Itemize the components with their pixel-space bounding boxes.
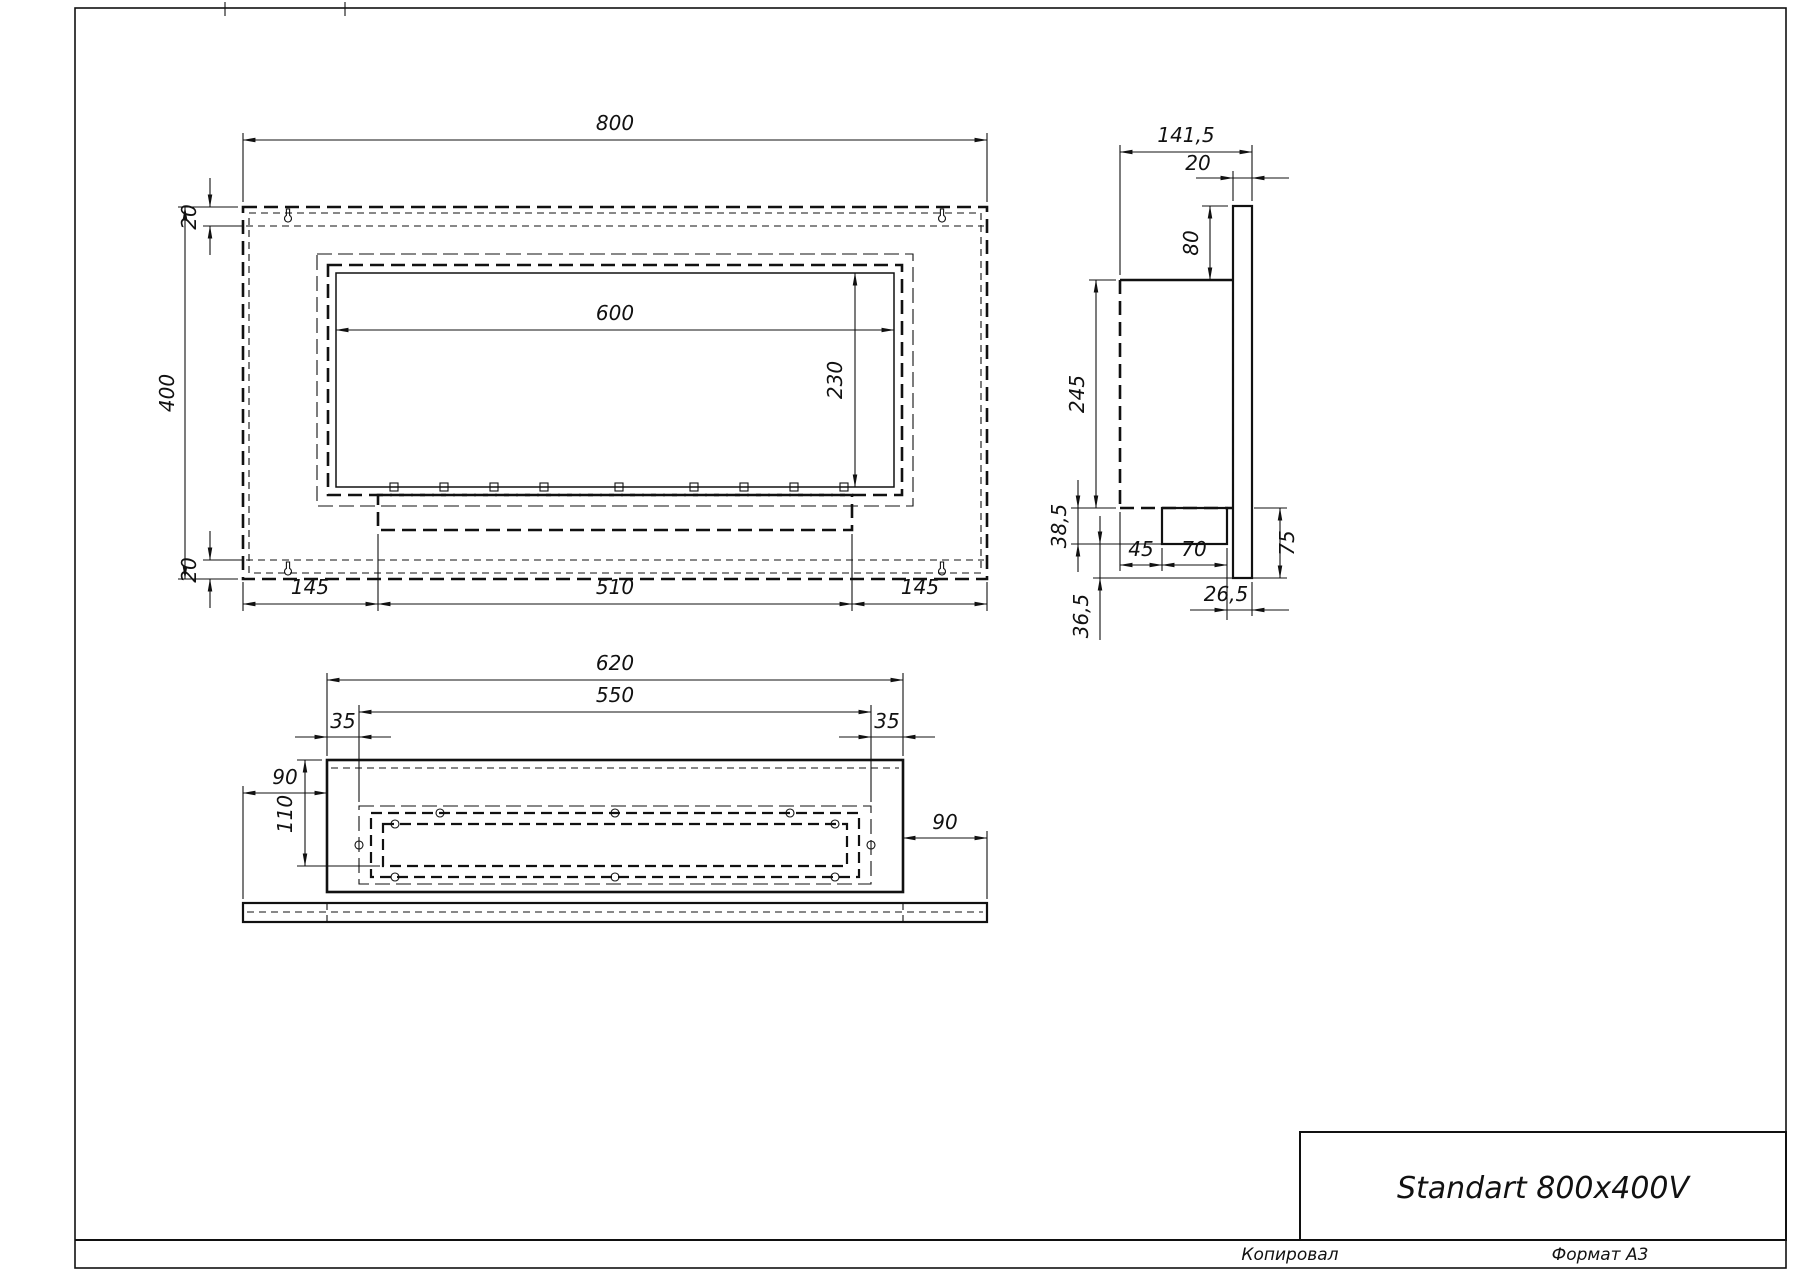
bottom-body-outline (327, 760, 903, 892)
footer-labels: Копировал Формат А3 (1241, 1245, 1648, 1265)
screw-hole-icon (355, 809, 875, 881)
dim-label: 400 (155, 374, 179, 412)
bottom-burner-inner (383, 824, 847, 866)
dim-label: 600 (596, 301, 634, 325)
dim-label: 800 (596, 111, 634, 135)
bottom-burner-outer (371, 813, 859, 877)
bottom-clearance-outline (359, 806, 871, 884)
copied-label: Копировал (1241, 1245, 1338, 1265)
dim-label: 245 (1065, 375, 1089, 413)
opening-frame-outline (328, 265, 902, 495)
bottom-view: 620 550 35 35 90 (243, 651, 987, 922)
dim-label: 230 (823, 361, 847, 399)
dim-back-gap: 26,5 (1190, 582, 1289, 616)
front-outer-outline (243, 207, 987, 579)
dim-label: 38,5 (1047, 504, 1071, 549)
dim-opening-width: 600 (336, 301, 894, 330)
dim-label: 90 (272, 765, 297, 789)
dim-label: 145 (291, 575, 329, 599)
dim-label: 20 (1185, 151, 1210, 175)
dim-label: 45 (1128, 537, 1153, 561)
page-frame (75, 2, 1786, 1268)
side-view: 141,5 20 80 245 (1047, 123, 1299, 640)
dim-front-height: 400 (155, 207, 238, 579)
back-panel (1233, 206, 1252, 578)
dim-label: 36,5 (1069, 594, 1093, 639)
burner-box-hidden-outline (378, 495, 852, 530)
dim-label: 90 (932, 810, 957, 834)
dim-front-bottom-offset: 20 (177, 531, 243, 608)
drawing-canvas: 800 400 20 20 600 (0, 0, 1800, 1273)
dim-flange-right: 90 (903, 810, 987, 899)
drawing-title: Standart 800x400V (1397, 1171, 1692, 1206)
dim-label: 510 (596, 575, 634, 599)
front-view: 800 400 20 20 600 (155, 111, 987, 611)
dim-front-top-offset: 20 (177, 178, 243, 255)
dim-below-tray: 36,5 (1069, 516, 1233, 640)
dim-label: 80 (1179, 230, 1203, 255)
dim-label: 550 (596, 683, 634, 707)
dim-label: 35 (330, 709, 355, 733)
drawing-sheet: 800 400 20 20 600 (0, 0, 1800, 1273)
dim-back-bottom-extension: 75 (1252, 508, 1299, 578)
dim-label: 110 (273, 795, 297, 833)
dim-label: 620 (596, 651, 634, 675)
bottom-back-panel-strip (243, 903, 987, 922)
format-label: Формат А3 (1552, 1245, 1649, 1265)
front-inner-outline (249, 213, 981, 573)
dim-label: 26,5 (1204, 582, 1249, 606)
dim-label: 20 (177, 557, 201, 582)
dim-label: 20 (177, 204, 201, 229)
dim-opening-height: 230 (823, 273, 855, 487)
dim-label: 35 (874, 709, 899, 733)
dim-front-width: 800 (243, 111, 987, 202)
dim-label: 75 (1275, 530, 1299, 555)
dim-bottom-inner-width: 550 (359, 683, 871, 802)
dim-bottom-insets: 35 35 (295, 709, 935, 737)
dim-back-top-extension: 80 (1179, 206, 1228, 280)
dim-body-height: 245 (1065, 280, 1116, 508)
dim-label: 70 (1181, 537, 1206, 561)
title-block: Standart 800x400V (1300, 1132, 1786, 1240)
dim-label: 141,5 (1157, 123, 1214, 147)
dim-panel-thickness: 20 (1185, 151, 1289, 201)
dim-label: 145 (901, 575, 939, 599)
